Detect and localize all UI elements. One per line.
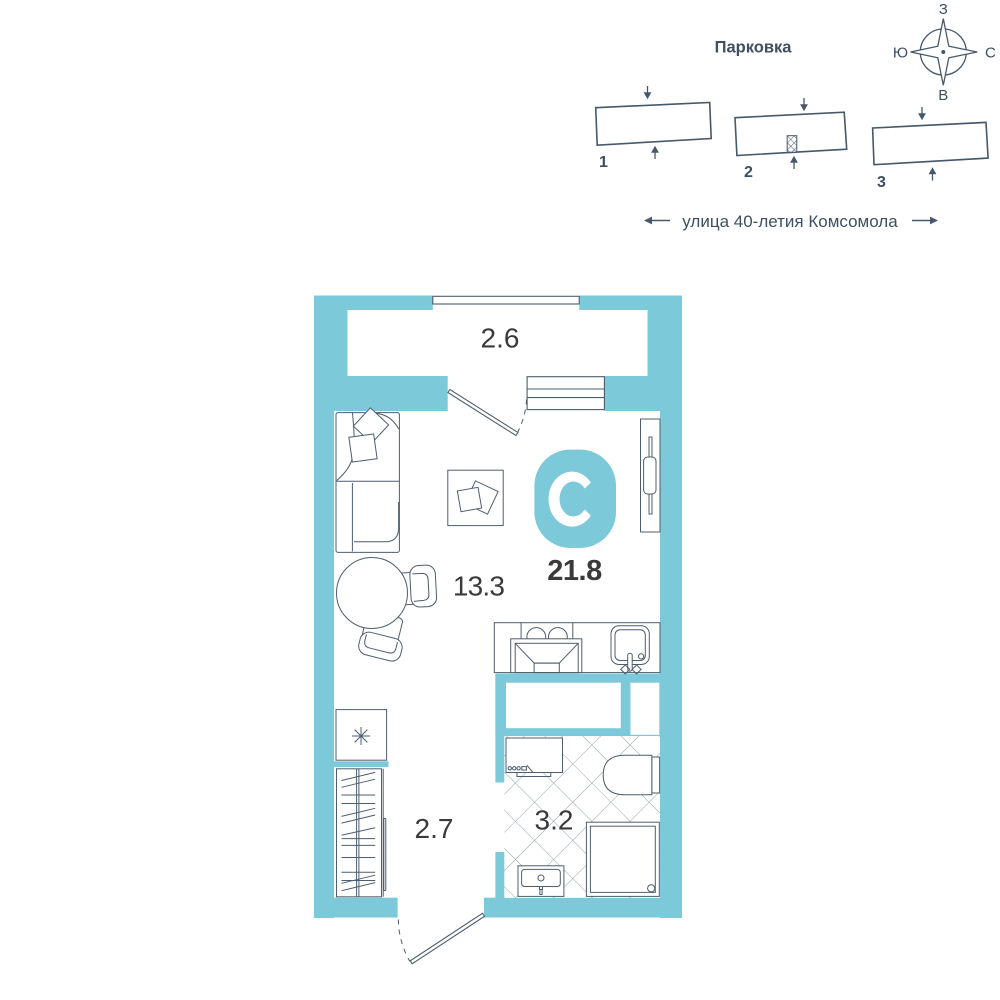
- svg-text:1: 1: [599, 154, 608, 171]
- svg-text:С: С: [985, 45, 996, 62]
- svg-text:улица 40-летия Комсомола: улица 40-летия Комсомола: [682, 212, 898, 231]
- svg-text:В: В: [938, 87, 948, 104]
- svg-text:2.7: 2.7: [415, 813, 454, 844]
- svg-text:Ю: Ю: [893, 45, 908, 62]
- svg-text:2.6: 2.6: [481, 323, 520, 354]
- svg-text:2: 2: [744, 164, 753, 181]
- svg-text:3.2: 3.2: [535, 805, 574, 836]
- svg-text:Парковка: Парковка: [715, 39, 793, 57]
- svg-text:13.3: 13.3: [453, 571, 505, 602]
- svg-text:3: 3: [877, 174, 886, 191]
- svg-text:21.8: 21.8: [547, 555, 602, 587]
- svg-text:З: З: [939, 1, 948, 18]
